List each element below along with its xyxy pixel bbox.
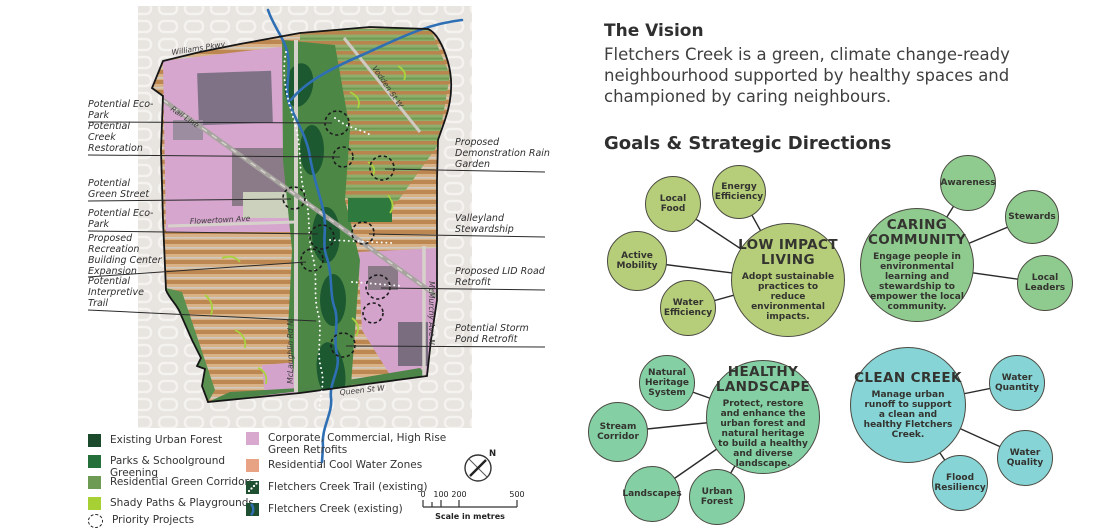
page: Williams Pkwy Rail Line Vodden St W Flow…: [0, 0, 1111, 532]
legend-swatch-creek-trail: [246, 481, 259, 494]
goal-satellite-urban-forest: Urban Forest: [689, 469, 745, 525]
goal-bubble-low-impact-living: LOW IMPACT LIVING Adopt sustainable prac…: [731, 223, 845, 337]
legend-item-cool-water-zones: Residential Cool Water Zones: [246, 459, 451, 472]
legend-swatch-parks-schoolground: [88, 455, 101, 468]
legend-swatch-creek-existing: [246, 503, 259, 516]
legend-item-creek-trail: Fletchers Creek Trail (existing): [246, 481, 451, 494]
legend-swatch-cool-water-zones: [246, 459, 259, 472]
compass-north-label: N: [489, 449, 496, 459]
legend-item-green-corridors: Residential Green Corridors: [88, 476, 263, 489]
goal-satellite-natural-heritage-system: Natural Heritage System: [639, 355, 695, 411]
callout-recreation-building-expansion: Proposed Recreation Building Center Expa…: [88, 233, 174, 277]
goal-satellite-active-mobility: Active Mobility: [607, 231, 667, 291]
goal-satellite-stewards: Stewards: [1005, 190, 1059, 244]
scale-tick-500: 500: [509, 490, 524, 499]
compass-rose: N: [465, 449, 496, 481]
goal-satellite-water-efficiency: Water Efficiency: [660, 280, 716, 336]
callout-storm-pond-retrofit: Potential Storm Pond Retrofit: [455, 323, 555, 345]
map-panel: Williams Pkwy Rail Line Vodden St W Flow…: [0, 0, 600, 532]
goal-satellite-local-leaders: Local Leaders: [1017, 255, 1073, 311]
goal-satellite-flood-resiliency: Flood Resiliency: [932, 455, 988, 511]
goal-satellite-energy-efficiency: Energy Efficiency: [712, 165, 766, 219]
legend-item-existing-urban-forest: Existing Urban Forest: [88, 434, 243, 447]
goal-satellite-water-quantity: Water Quantity: [989, 355, 1045, 411]
legend-item-shady-paths: Shady Paths & Playgrounds: [88, 497, 263, 510]
scale-tick-200: 200: [451, 490, 466, 499]
legend-swatch-priority-projects: [88, 514, 103, 528]
callout-lid-road-retrofit: Proposed LID Road Retrofit: [455, 266, 555, 288]
callout-potential-green-street: Potential Green Street: [88, 178, 158, 200]
goal-satellite-awareness: Awareness: [940, 155, 996, 211]
goal-bubble-clean-creek: CLEAN CREEK Manage urban runoff to suppo…: [850, 347, 966, 463]
legend-item-creek-existing: Fletchers Creek (existing): [246, 503, 451, 516]
goal-satellite-landscapes: Landscapes: [624, 466, 680, 522]
street-label-mcmurchy-ave: McMurchy Ave N: [427, 281, 436, 345]
callout-demonstration-rain-garden: Proposed Demonstration Rain Garden: [455, 137, 555, 170]
legend-swatch-green-corridors: [88, 476, 101, 489]
vision-goals-panel: The Vision Fletchers Creek is a green, c…: [600, 0, 1111, 532]
legend-swatch-existing-urban-forest: [88, 434, 101, 447]
legend-item-corporate-retrofits: Corporate, Commercial, High Rise Green R…: [246, 432, 451, 456]
goal-satellite-water-quality: Water Quality: [997, 430, 1053, 486]
goal-satellite-local-food: Local Food: [645, 176, 701, 232]
legend-item-priority-projects: Priority Projects: [88, 514, 263, 528]
callout-potential-creek-restoration: Potential Creek Restoration: [88, 121, 158, 154]
legend-swatch-shady-paths: [88, 497, 101, 510]
goal-bubble-healthy-landscape: HEALTHY LANDSCAPE Protect, restore and e…: [706, 360, 820, 474]
callout-valleyland-stewardship: Valleyland Stewardship: [455, 213, 555, 235]
callout-potential-eco-park-1: Potential Eco-Park: [88, 99, 158, 121]
callout-potential-interpretive-trail: Potential Interpretive Trail: [88, 276, 158, 309]
goal-bubble-caring-community: CARING COMMUNITY Engage people in enviro…: [860, 208, 974, 322]
callout-potential-eco-park-2: Potential Eco-Park: [88, 208, 158, 230]
street-label-mclaughlin-rd: McLaughlin Rd N: [286, 320, 295, 384]
goal-satellite-stream-corridor: Stream Corridor: [588, 402, 648, 462]
legend-swatch-corporate-retrofits: [246, 432, 259, 445]
